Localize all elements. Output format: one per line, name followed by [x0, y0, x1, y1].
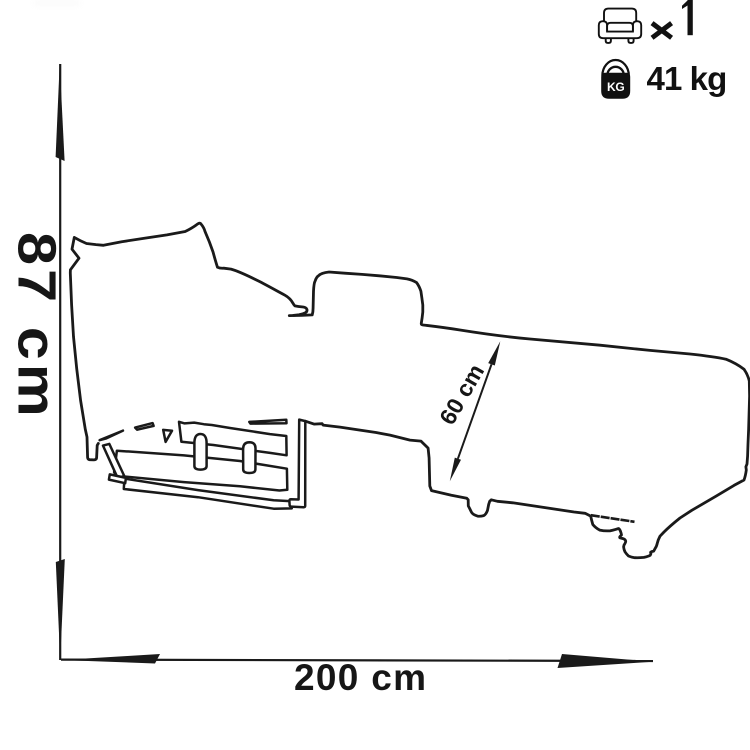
- svg-text:200 cm: 200 cm: [294, 657, 427, 698]
- svg-text:KG: KG: [607, 80, 624, 94]
- svg-text:87 cm: 87 cm: [6, 232, 66, 421]
- svg-text:41 kg: 41 kg: [647, 60, 727, 97]
